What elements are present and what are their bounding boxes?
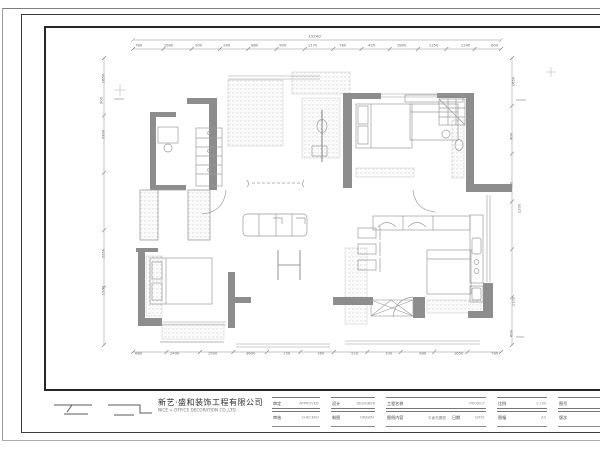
- title-block-group: 比例1:100 图幅A3: [497, 397, 547, 427]
- field-label: 审核: [273, 414, 281, 420]
- company-name-cn: 新艺·盛和装饰工程有限公司: [158, 398, 278, 408]
- field-label: 制图: [332, 414, 340, 420]
- field-sub: 平面布置图: [428, 414, 446, 419]
- company-name-en: NICE + OFFICE DECORATION CO.,LTD.: [158, 408, 242, 413]
- title-block-group: 工程名称PROJECT 图纸内容平面布置图 日期DATE: [386, 397, 486, 427]
- break-line-symbols: [52, 397, 162, 425]
- title-block-fields: 审定APPROVED 审核CHECKED 设计DESIGNER 制图DRAWN …: [272, 397, 600, 427]
- field-sub: APPROVED: [299, 401, 319, 405]
- field-label: 比例: [498, 400, 506, 406]
- field-sub: DESIGNER: [356, 401, 375, 405]
- field-label: 日期: [452, 414, 460, 420]
- field-sub: CHECKED: [302, 415, 319, 419]
- title-block-group: 审定APPROVED 审核CHECKED: [272, 397, 320, 427]
- title-block-group: 图号NO. 版次A0: [558, 397, 600, 427]
- floor-plan-drawing: [0, 0, 600, 450]
- company-block: 新艺·盛和装饰工程有限公司 NICE + OFFICE DECORATION C…: [158, 398, 278, 415]
- field-label: 设计: [332, 400, 340, 406]
- field-sub: DATE: [476, 415, 485, 419]
- field-sub: 1:100: [536, 401, 546, 405]
- field-label: 图号: [559, 400, 567, 406]
- field-label: 图纸内容: [387, 414, 403, 420]
- title-block: 新艺·盛和装饰工程有限公司 NICE + OFFICE DECORATION C…: [44, 394, 600, 431]
- field-label: 版次: [559, 414, 567, 420]
- title-block-group: 设计DESIGNER 制图DRAWN: [331, 397, 375, 427]
- field-label: 审定: [273, 400, 281, 406]
- field-sub: DRAWN: [360, 415, 374, 419]
- cad-sheet: { "sheet": { "company_cn": "新艺·盛和装饰工程有限公…: [0, 0, 600, 450]
- field-sub: PROJECT: [469, 401, 485, 405]
- field-label: 工程名称: [387, 400, 403, 406]
- field-sub: A3: [541, 415, 546, 419]
- field-label: 图幅: [498, 414, 506, 420]
